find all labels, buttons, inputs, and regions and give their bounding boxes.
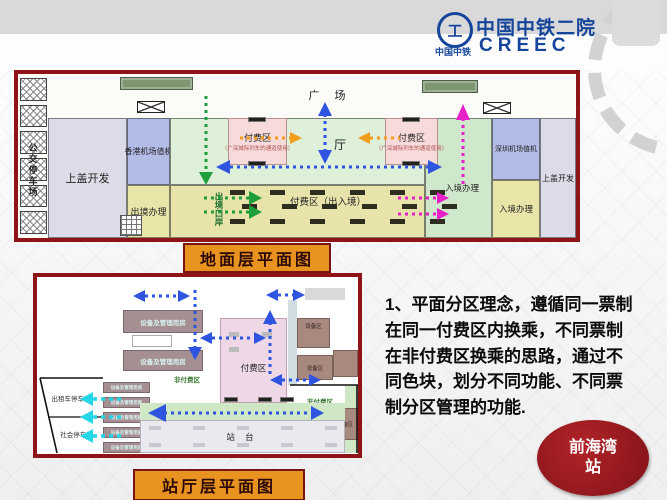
paid-zone-note: （广深城际列车的通道使用）: [222, 144, 294, 152]
paid-zone-label: 付费区: [398, 131, 425, 144]
stair-grid-icon: [120, 215, 142, 236]
concourse-green-band: [140, 403, 345, 420]
pillar: [229, 332, 239, 337]
plaza-label: 广 场: [290, 88, 370, 102]
note-line: 同色块，划分不同功能、不同票: [385, 369, 667, 395]
platform-ticks: [149, 426, 337, 430]
region-podium-right: 上盖开发: [540, 118, 576, 238]
gate-row: [242, 204, 470, 209]
public-parking-label: 社会停车场: [49, 429, 104, 439]
fare-gate: [402, 117, 420, 122]
org-name-english: CREEC: [479, 35, 571, 57]
gate-row: [230, 190, 470, 195]
fare-gate: [258, 397, 272, 402]
fare-gate: [280, 397, 294, 402]
corridor-strip: [288, 300, 297, 385]
corridor-box: [132, 335, 172, 347]
fare-gate: [248, 161, 266, 166]
bus-parking-label: 公交停车场: [21, 110, 45, 230]
gray-box: [305, 288, 345, 300]
equipment-room: 设备及管理用房: [103, 382, 150, 393]
paid-zone-label: 付费区: [220, 362, 287, 374]
concourse-plan: 设备及管理用房 设备及管理用房 设备及管理用房 设备及管理用房 设备及管理用房 …: [33, 273, 362, 458]
region-hk-checkin: 香港机场值机: [127, 118, 170, 185]
ground-floor-plan: 公交停车场 广 场 上盖开发 香港机场值机 出境办理 厅 付费区（出入境） 入境…: [14, 70, 580, 242]
paid-zone-label: 付费区: [244, 131, 271, 144]
equipment-room: 设备及管理用房: [123, 310, 203, 333]
station-badge: 前海湾 站: [537, 420, 649, 496]
note-line: 在同一付费区内换乘，不同票制: [385, 318, 667, 344]
pillar: [229, 347, 239, 352]
escalator-icon: [137, 101, 165, 113]
equipment-zone: 设备区: [297, 318, 330, 348]
station-name: 前海湾: [569, 438, 617, 458]
hall-label: 厅: [330, 136, 350, 152]
platform-ticks: [149, 443, 337, 447]
region-arrival-yellow: 入境办理: [492, 180, 540, 238]
region-paid-zone-west: 付费区 （广深城际列车的通道使用）: [228, 118, 287, 165]
slide: 工 中国中铁 中国中铁二院 CREEC 公交停车场 广 场 上盖开发 香港机场值…: [0, 0, 667, 500]
fare-gate: [248, 117, 266, 122]
decorative-gray-square: [612, 0, 660, 46]
equipment-box: [333, 350, 358, 377]
pillar: [262, 332, 272, 337]
taxi-parking-label: 出租车停车场: [42, 393, 100, 403]
gate-row: [230, 219, 470, 224]
canopy-bar: [120, 77, 193, 90]
logo-glyph: 工: [447, 20, 462, 41]
region-paid-zone-east: 付费区 （广深城际列车的通道使用）: [385, 118, 438, 165]
region-podium-left: 上盖开发: [48, 118, 127, 238]
concept-note: 1、平面分区理念，遵循同一票制 在同一付费区内换乘，不同票制 在非付费区换乘的思…: [385, 292, 667, 421]
region-sz-checkin: 深圳机场值机: [492, 118, 540, 180]
region-paid-zone: [220, 318, 287, 403]
exit-port-label: 出境口岸: [212, 182, 226, 236]
logo-caption: 中国中铁: [421, 45, 485, 58]
equipment-room: 设备及管理用房: [123, 350, 203, 371]
paid-zone-note: （广深城际列车的通道使用）: [376, 144, 448, 152]
plan2-caption: 站厅层平面图: [133, 469, 305, 500]
unpaid-zone-label: 非付费区: [167, 374, 207, 383]
note-line: 在非付费区换乘的思路，通过不: [385, 344, 667, 370]
note-line: 1、平面分区理念，遵循同一票制: [385, 292, 667, 318]
canopy-bar: [422, 80, 478, 93]
note-line: 制分区管理的功能.: [385, 395, 667, 421]
fare-gate: [224, 397, 238, 402]
platform-label: 站 台: [207, 431, 277, 443]
fare-gate: [402, 161, 420, 166]
station-suffix: 站: [585, 458, 601, 478]
escalator-icon: [483, 102, 511, 114]
creec-logo-icon: 工: [437, 12, 473, 48]
plan1-caption: 地面层平面图: [183, 243, 331, 273]
equipment-zone: 设备区: [297, 355, 333, 380]
